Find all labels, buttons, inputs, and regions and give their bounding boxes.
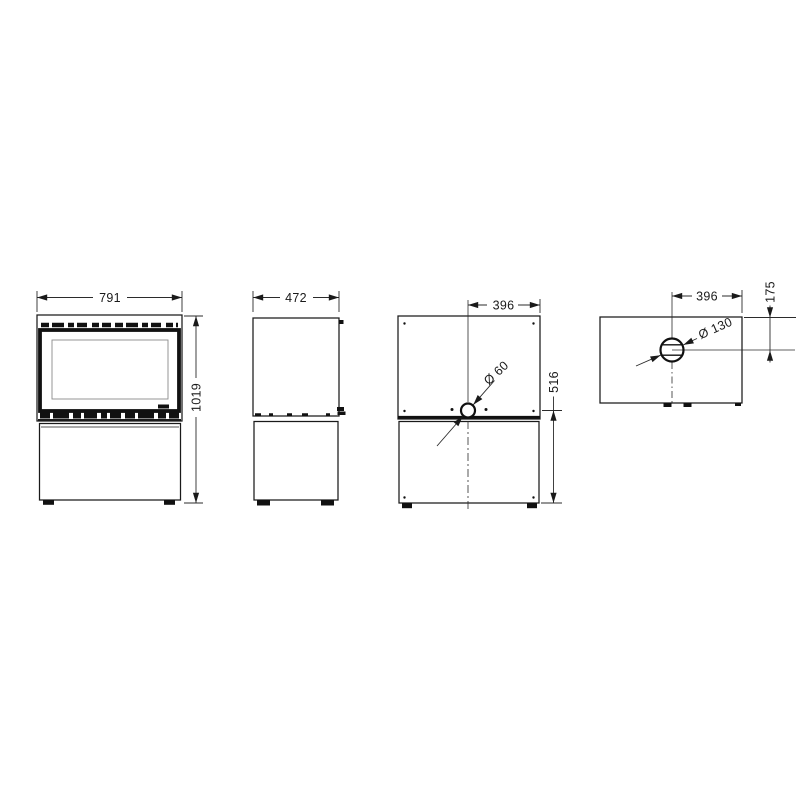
dim-label-top-flue-diameter: Ø 130 (696, 315, 734, 342)
foot-right (527, 503, 537, 508)
door-handle-knob (337, 407, 344, 411)
top-plate-tab (339, 320, 344, 324)
base-cabinet-side (254, 422, 338, 501)
foot-right (321, 500, 334, 506)
rear-view: Ø 60 (398, 300, 540, 512)
dim-front-height: 1019 (184, 316, 203, 503)
dim-rear-offset: 396 (468, 299, 540, 314)
dim-front-width: 791 (37, 291, 182, 313)
side-upper-body (253, 318, 339, 416)
handle-tab-right (684, 403, 692, 407)
foot-right (164, 500, 175, 505)
foot-left (43, 500, 54, 505)
dim-label-rear-offset: 396 (493, 299, 515, 313)
dim-top-offset: 396 (672, 290, 742, 314)
stove-dimension-drawing: 791 1019 472 (0, 0, 800, 800)
technical-drawing-page: 791 1019 472 (0, 0, 800, 800)
handle-tab-left (664, 403, 672, 407)
dim-label-side-depth: 472 (285, 291, 307, 305)
dim-label-rear-flue-diameter: Ø 60 (481, 358, 511, 388)
air-intake-circle (461, 404, 475, 418)
corner-tab (735, 403, 741, 406)
dim-label-front-height: 1019 (189, 383, 203, 412)
dim-rear-flue-height: 516 (541, 371, 562, 503)
base-cabinet-rear (399, 422, 539, 504)
leader-line (636, 355, 661, 366)
foot-left (402, 503, 412, 508)
dim-side-depth: 472 (253, 291, 339, 313)
dim-label-top-flue-depth: 175 (763, 281, 777, 303)
dim-label-front-width: 791 (99, 291, 121, 305)
foot-left (257, 500, 270, 506)
dim-label-top-offset: 396 (696, 290, 718, 304)
leader-line (683, 339, 697, 345)
front-view (37, 315, 182, 505)
dim-label-rear-flue-height: 516 (547, 371, 561, 393)
base-cabinet-front (40, 424, 181, 501)
brand-label (158, 405, 169, 409)
side-view (253, 318, 346, 506)
top-view: Ø 130 (600, 292, 795, 407)
door-handle-base (338, 412, 346, 416)
